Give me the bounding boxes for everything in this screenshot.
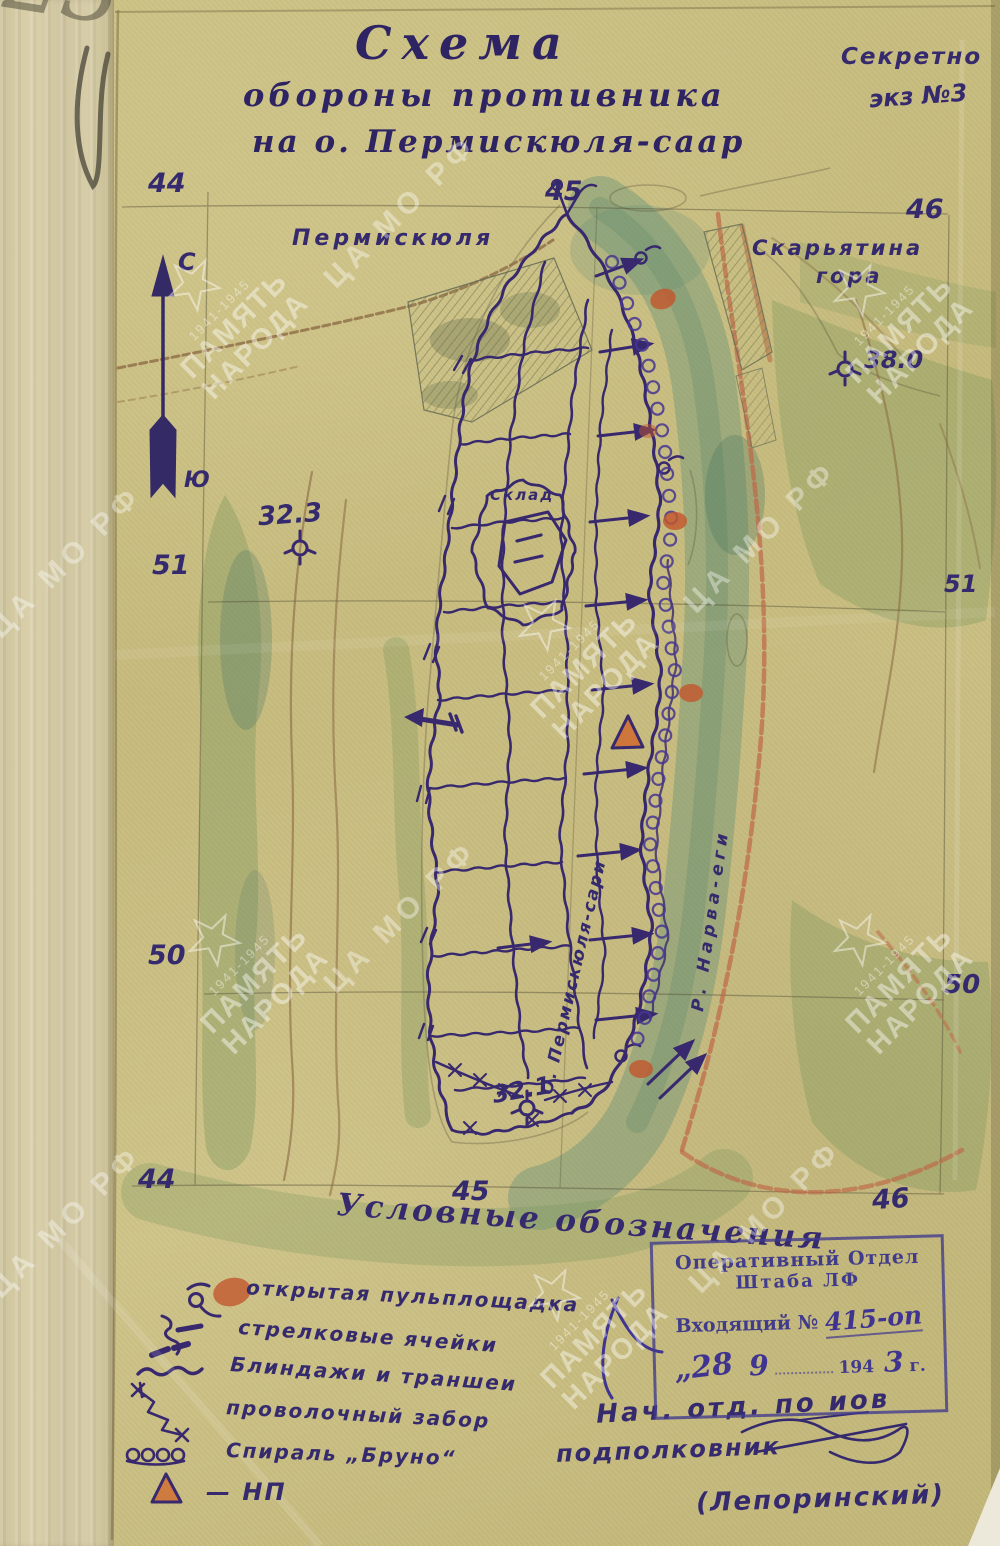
legend-symbol-bruno-spiral — [127, 1449, 184, 1465]
spot-height-38-0: 38.0 — [864, 346, 923, 374]
grid-number-left-51: 51 — [152, 550, 190, 581]
label-village-permiskyula: Пермискюля — [292, 226, 494, 251]
scanned-map-sheet: Схема обороны противника на о. Пермискюл… — [0, 0, 1000, 1546]
stamp-date-row: „28 9 1943 г. — [656, 1343, 945, 1386]
pencil-stroke-mark — [77, 48, 108, 186]
grid-number-top-46: 46 — [906, 194, 944, 225]
grid-number-top-45: 45 — [545, 176, 583, 207]
stamp-incoming-row: Входящий № 415-оп — [654, 1302, 943, 1341]
spot-height-32-3: 32.3 — [257, 498, 323, 532]
stamp-year-hand: 3 — [884, 1345, 904, 1378]
legend-label-np: — НП — [206, 1478, 287, 1506]
map-title-line3: на о. Пермискюля-саар — [252, 124, 745, 160]
stamp-month: 9 — [749, 1349, 769, 1382]
grid-number-left-50: 50 — [148, 940, 186, 971]
classification-secret: Секретно — [841, 44, 982, 70]
stamp-incoming-number: 415-оп — [824, 1300, 924, 1339]
label-skaryatina: Скарьятина — [752, 236, 923, 260]
grid-number-bottom-46: 46 — [871, 1183, 911, 1217]
legend-symbol-open-mg-platform — [188, 1274, 254, 1316]
map-title-line1: Схема — [355, 16, 572, 70]
map-title-line2: обороны противника — [243, 76, 726, 114]
grid-number-bottom-44: 44 — [138, 1164, 176, 1195]
grid-number-top-44: 44 — [148, 168, 186, 199]
grid-number-right-51: 51 — [944, 570, 977, 598]
incoming-stamp: Оперативный Отдел Штаба ЛФ Входящий № 41… — [650, 1234, 949, 1420]
north-arrow-icon — [150, 256, 176, 497]
compass-north-label: С — [178, 248, 196, 276]
stamp-day: „28 — [672, 1346, 735, 1387]
legend-symbol-observation-post — [152, 1474, 181, 1502]
label-warehouse: Склад — [490, 486, 554, 504]
grid-number-right-50: 50 — [944, 970, 980, 1000]
observation-post-map — [612, 716, 643, 748]
legend-symbol-wire-fence — [132, 1383, 188, 1441]
compass-south-label: Ю — [184, 468, 210, 493]
label-gora: гора — [816, 264, 883, 288]
